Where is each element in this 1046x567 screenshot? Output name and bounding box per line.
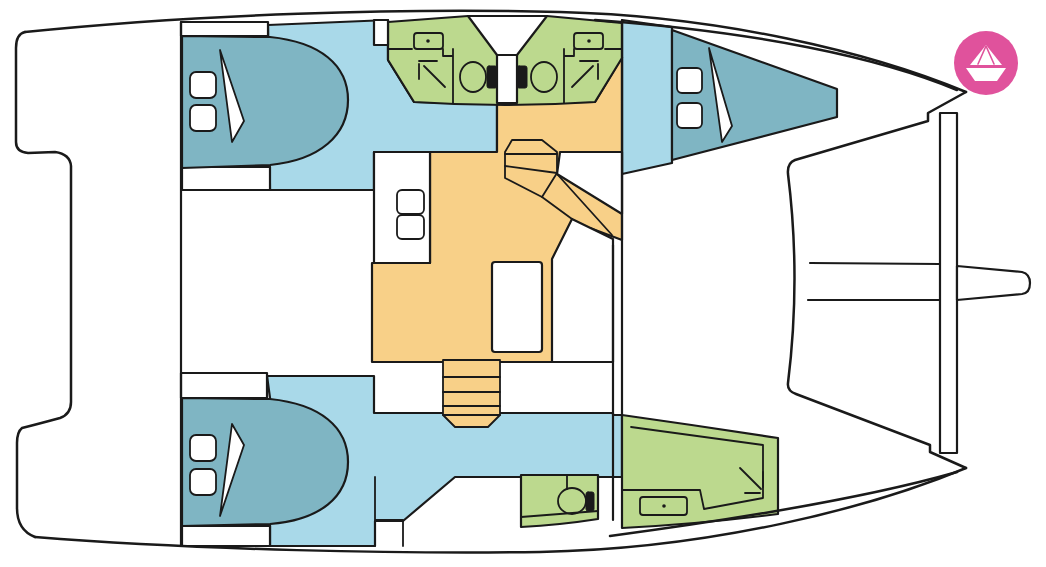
locker-notch	[374, 20, 388, 45]
toilet-tank	[517, 66, 527, 88]
galley-sink	[397, 190, 424, 214]
forward-port-bed	[672, 30, 837, 160]
port-aft-shelf	[181, 22, 268, 36]
stbd-aft-step	[182, 526, 270, 546]
forward-rig	[940, 113, 1030, 453]
forward-starboard-bathroom	[622, 415, 778, 528]
bathroom-divider-gap	[497, 55, 517, 103]
stbd-aft-shelf	[181, 373, 267, 398]
faucet-dot	[426, 39, 430, 43]
trampoline-lacing	[808, 263, 940, 300]
forward-port-cabin-floor	[622, 20, 672, 174]
pillow	[190, 435, 216, 461]
forward-crossbeam	[940, 113, 957, 453]
salon-table	[492, 262, 542, 352]
stern-platform-outline	[16, 32, 71, 537]
floor-plan-svg	[0, 0, 1046, 567]
bowsprit	[957, 266, 1030, 300]
faucet-dot	[662, 504, 666, 508]
galley-sinks	[397, 190, 424, 239]
aft-port-bed	[182, 36, 348, 168]
aft-starboard-bed	[182, 398, 348, 526]
pillow	[677, 103, 702, 128]
toilet-tank	[487, 66, 497, 88]
companionway-stairs	[443, 360, 500, 427]
logo-badge	[954, 31, 1018, 95]
toilet-tank	[586, 492, 594, 511]
pillow	[190, 72, 216, 98]
galley-sink	[397, 215, 424, 239]
port-aft-step	[182, 167, 270, 190]
pillow	[677, 68, 702, 93]
boat-layout-diagram	[0, 0, 1046, 567]
hull-bottom-edge	[35, 468, 966, 552]
pillow	[190, 469, 216, 495]
pillow	[190, 105, 216, 131]
nav-station-seat	[552, 219, 613, 362]
faucet-dot	[587, 39, 591, 43]
